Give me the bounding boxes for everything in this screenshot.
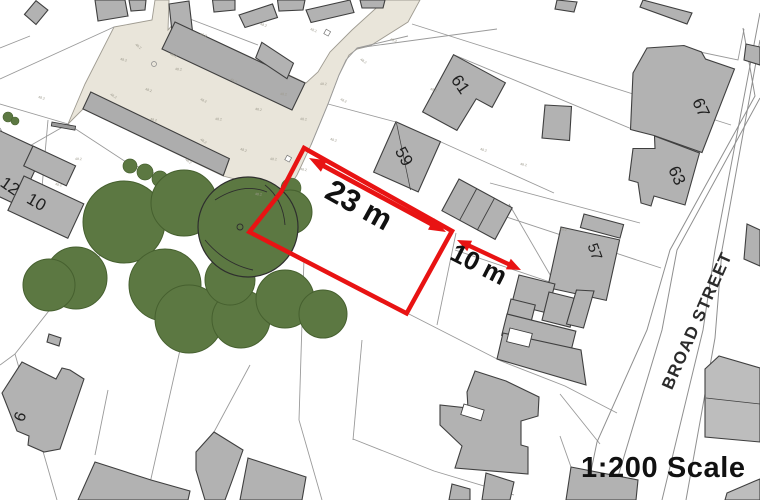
svg-text:48.2: 48.2 — [300, 117, 307, 121]
svg-text:48.2: 48.2 — [280, 92, 287, 97]
svg-text:1:200 Scale: 1:200 Scale — [581, 452, 746, 484]
svg-text:48.2: 48.2 — [215, 117, 222, 122]
svg-text:48.2: 48.2 — [320, 82, 327, 86]
svg-text:48.2: 48.2 — [255, 192, 262, 197]
svg-text:48.2: 48.2 — [175, 67, 182, 72]
svg-text:48.2: 48.2 — [270, 157, 277, 161]
svg-text:48.2: 48.2 — [75, 157, 82, 161]
